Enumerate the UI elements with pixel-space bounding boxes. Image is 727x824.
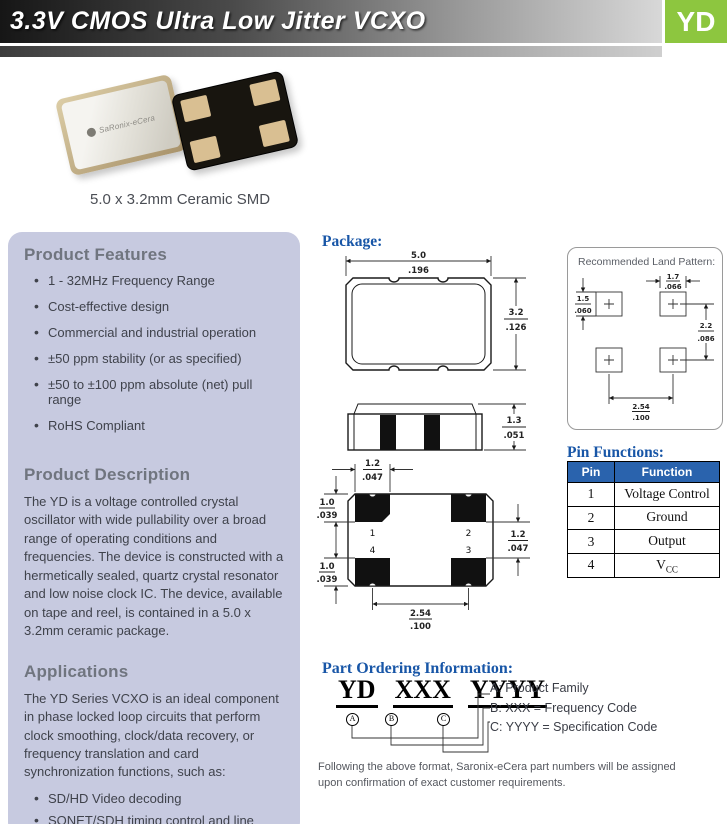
chip-lid: SaRonix-eCera: [61, 80, 182, 171]
marker-b: B: [385, 713, 398, 726]
saronix-logo-icon: [86, 126, 97, 137]
land-dim-row-pitch-mm: 2.2: [700, 322, 713, 330]
dim-pad-width-in: .047: [362, 473, 383, 483]
dim-top-width-in: .196: [408, 266, 429, 276]
table-header-row: Pin Function: [568, 462, 720, 483]
package-bottom-view-drawing: 1.2 .047 1 2 4 3 1.0 .039 1.0 .039: [316, 452, 544, 630]
feature-item: Cost-effective design: [34, 299, 286, 314]
package-top-view-drawing: 5.0 .196 3.2 .126: [328, 246, 543, 404]
function-name: Voltage Control: [624, 486, 710, 501]
land-dim-pad-h-in: .060: [574, 307, 591, 315]
function-cell: Ground: [615, 506, 720, 530]
dim-top-width-mm: 5.0: [411, 251, 426, 261]
ordering-connector-lines: [330, 688, 530, 768]
product-description-section: Product Description The YD is a voltage …: [24, 465, 286, 641]
dim-row-gap-in: .047: [508, 544, 529, 554]
datasheet-page: 3.3V CMOS Ultra Low Jitter VCXO YD SaRon…: [0, 0, 727, 824]
application-item: SONET/SDH timing control and line cards: [34, 813, 286, 824]
dim-side-height-mm: 1.3: [506, 416, 521, 426]
land-dim-pad-w-in: .066: [664, 283, 681, 291]
dim-pitch-in: .100: [410, 622, 431, 632]
dim-top-height-in: .126: [506, 323, 527, 333]
applications-list: SD/HD Video decoding SONET/SDH timing co…: [24, 791, 286, 824]
table-row: 3 Output: [568, 530, 720, 554]
dim-pad-height2-mm: 1.0: [319, 562, 334, 572]
applications-intro: The YD Series VCXO is an ideal component…: [24, 690, 286, 782]
page-title: 3.3V CMOS Ultra Low Jitter VCXO: [10, 0, 426, 43]
dim-pad-height-in: .039: [317, 511, 338, 521]
feature-item: 1 - 32MHz Frequency Range: [34, 273, 286, 288]
dim-pitch-mm: 2.54: [410, 609, 431, 619]
pin-cell: 1: [568, 483, 615, 507]
function-name: Ground: [646, 509, 687, 524]
pin-number-3: 3: [466, 546, 472, 556]
table-row: 2 Ground: [568, 506, 720, 530]
feature-item: Commercial and industrial operation: [34, 325, 286, 340]
dim-row-gap-mm: 1.2: [510, 530, 525, 540]
pin-cell: 4: [568, 554, 615, 578]
land-dim-col-pitch-in: .100: [632, 414, 649, 422]
function-cell: Voltage Control: [615, 483, 720, 507]
col-header-function: Function: [615, 462, 720, 483]
pin-functions-heading: Pin Functions:: [567, 444, 664, 462]
product-description-text: The YD is a voltage controlled crystal o…: [24, 493, 286, 641]
table-row: 4 VCC: [568, 554, 720, 578]
application-item: SD/HD Video decoding: [34, 791, 286, 806]
dim-pad-width-mm: 1.2: [365, 459, 380, 469]
chip-pad: [259, 120, 290, 148]
pin-cell: 2: [568, 506, 615, 530]
feature-item: ±50 ppm stability (or as specified): [34, 351, 286, 366]
feature-item: ±50 to ±100 ppm absolute (net) pull rang…: [34, 377, 286, 407]
product-features-list: 1 - 32MHz Frequency Range Cost-effective…: [24, 273, 286, 433]
header-shadow-strip: [0, 46, 662, 57]
pin-cell: 3: [568, 530, 615, 554]
info-panel: Product Features 1 - 32MHz Frequency Ran…: [8, 232, 300, 824]
land-dim-row-pitch-in: .086: [697, 335, 714, 343]
pin-number-4: 4: [370, 546, 376, 556]
product-features-heading: Product Features: [24, 245, 286, 265]
function-cell: VCC: [615, 554, 720, 578]
chip-pad: [249, 79, 280, 107]
applications-heading: Applications: [24, 662, 286, 682]
chip-photo-top-view: SaRonix-eCera: [55, 74, 188, 177]
land-dim-pad-w-mm: 1.7: [667, 273, 680, 281]
marker-c: C: [437, 713, 450, 726]
col-header-pin: Pin: [568, 462, 615, 483]
land-pattern-drawing: 1.7 .066 1.5 .060 2.2 .086 2.54 .100: [570, 270, 720, 422]
pin-functions-table: Pin Function 1 Voltage Control 2 Ground …: [567, 461, 720, 578]
dim-pad-height-mm: 1.0: [319, 498, 334, 508]
table-row: 1 Voltage Control: [568, 483, 720, 507]
dim-pad-height2-in: .039: [317, 575, 338, 585]
function-name: Output: [648, 533, 686, 548]
dim-side-height-in: .051: [504, 431, 525, 441]
yd-logo-text: YD: [677, 6, 716, 38]
function-cell: Output: [615, 530, 720, 554]
chip-photo-bottom-view: [171, 70, 300, 172]
marker-a: A: [346, 713, 359, 726]
applications-section: Applications The YD Series VCXO is an id…: [24, 662, 286, 824]
chip-brand-text: SaRonix-eCera: [98, 113, 156, 135]
chip-pad: [180, 95, 211, 123]
feature-item: RoHS Compliant: [34, 418, 286, 433]
pin-number-1: 1: [370, 529, 376, 539]
chip-pad: [190, 136, 221, 164]
dim-top-height-mm: 3.2: [508, 308, 523, 318]
pin-number-2: 2: [466, 529, 472, 539]
photo-caption: 5.0 x 3.2mm Ceramic SMD: [90, 191, 270, 208]
yd-logo-badge: YD: [665, 0, 727, 43]
product-description-heading: Product Description: [24, 465, 286, 485]
land-dim-col-pitch-mm: 2.54: [632, 403, 649, 411]
function-name: V: [656, 557, 666, 572]
land-dim-pad-h-mm: 1.5: [577, 295, 590, 303]
function-sub: CC: [666, 564, 678, 574]
package-side-view-drawing: 1.3 .051: [336, 398, 536, 456]
product-features-section: Product Features 1 - 32MHz Frequency Ran…: [24, 245, 286, 433]
land-pattern-title: Recommended Land Pattern:: [578, 256, 722, 268]
